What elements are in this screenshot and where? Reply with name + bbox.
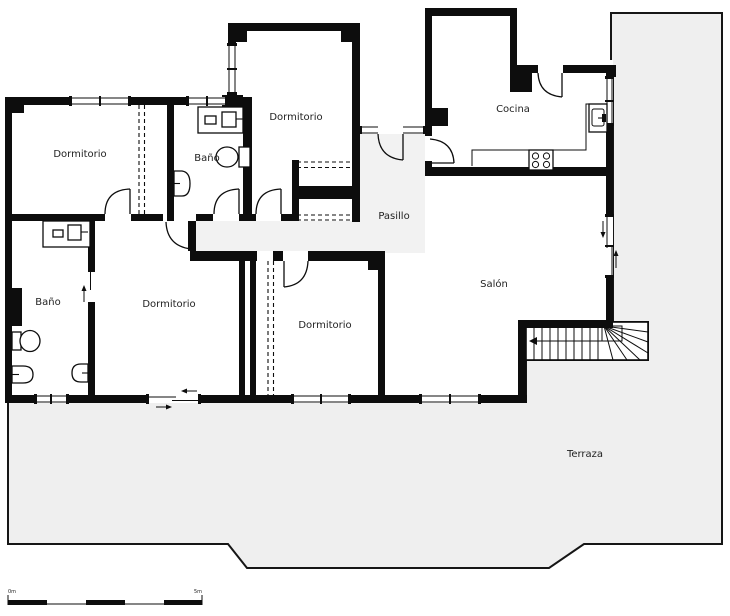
room-label-terraza: Terraza xyxy=(566,449,603,460)
room-label-bano-sw: Baño xyxy=(35,297,60,308)
room-label-bano-n: Baño xyxy=(194,153,219,164)
room-label-salon: Salón xyxy=(480,278,508,290)
room-label-dormitorio-sw: Dormitorio xyxy=(142,299,195,310)
window-sw-bath xyxy=(34,394,69,404)
sw-bath-bidet-left xyxy=(12,366,33,383)
north-bath-toilet xyxy=(216,147,250,167)
window-salon-south xyxy=(419,394,481,404)
sw-bath-sink xyxy=(43,221,90,247)
scale-bar: 0m 5m xyxy=(8,589,202,605)
scale-min-label: 0m xyxy=(8,589,16,595)
sw-bath-bidet-right xyxy=(72,364,88,382)
room-label-pasillo: Pasillo xyxy=(378,211,409,222)
window-north-bedroom xyxy=(227,43,237,95)
kitchen-stove xyxy=(529,150,553,170)
window-nw-1 xyxy=(69,96,131,106)
room-label-dormitorio-s: Dormitorio xyxy=(298,320,351,331)
room-label-dormitorio-nw: Dormitorio xyxy=(53,149,106,160)
north-bath-bidet xyxy=(174,171,190,196)
room-label-dormitorio-n: Dormitorio xyxy=(269,112,322,123)
sw-bath-toilet xyxy=(12,331,40,352)
floor-plan-canvas: Dormitorio Baño Dormitorio Cocina Pasill… xyxy=(0,0,730,616)
kitchen-sink xyxy=(589,104,607,132)
scale-max-label: 5m xyxy=(194,589,202,595)
north-bath-sink xyxy=(198,107,244,133)
entrance-sidelight-left xyxy=(362,126,378,134)
window-nw-2 xyxy=(186,96,228,106)
room-label-cocina: Cocina xyxy=(496,104,530,115)
entrance-sidelight-right xyxy=(403,126,423,134)
window-south-bedroom xyxy=(291,394,351,404)
floor-plan: Dormitorio Baño Dormitorio Cocina Pasill… xyxy=(0,0,730,616)
